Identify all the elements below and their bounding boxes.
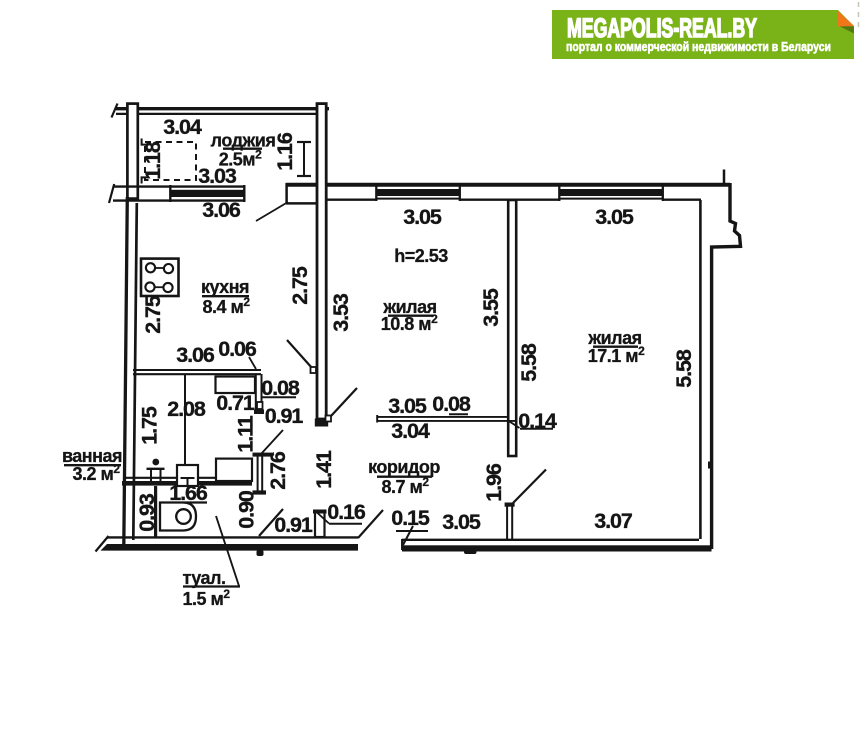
svg-text:3.07: 3.07	[594, 509, 633, 533]
svg-text:1.96: 1.96	[482, 463, 506, 502]
svg-text:5.58: 5.58	[672, 349, 696, 388]
svg-text:h=2.53: h=2.53	[394, 246, 448, 266]
svg-text:5.58: 5.58	[517, 343, 541, 382]
svg-text:1.5 м2: 1.5 м2	[182, 587, 230, 609]
svg-text:туал.: туал.	[183, 568, 226, 588]
svg-text:3.05: 3.05	[442, 510, 481, 534]
svg-text:3.06: 3.06	[202, 198, 241, 222]
svg-text:0.06: 0.06	[218, 337, 257, 361]
svg-text:3.04: 3.04	[163, 115, 202, 139]
svg-text:3.05: 3.05	[388, 394, 427, 418]
svg-text:0.08: 0.08	[432, 392, 471, 416]
svg-text:кухня: кухня	[201, 277, 249, 297]
svg-text:1.18: 1.18	[141, 141, 165, 180]
svg-text:3.04: 3.04	[391, 419, 430, 443]
svg-text:2.75: 2.75	[141, 295, 165, 334]
svg-text:8.4 м2: 8.4 м2	[202, 295, 250, 317]
svg-text:3.05: 3.05	[595, 205, 634, 229]
svg-text:3.03: 3.03	[198, 164, 237, 188]
svg-text:портал о коммерческой недвижим: портал о коммерческой недвижимости в Бел…	[566, 40, 831, 54]
svg-text:жилая: жилая	[587, 328, 641, 348]
svg-text:0.90: 0.90	[235, 490, 259, 529]
svg-text:лоджия: лоджия	[211, 131, 276, 151]
svg-text:3.06: 3.06	[176, 343, 215, 367]
svg-text:3.53: 3.53	[329, 293, 353, 332]
svg-text:8.7 м2: 8.7 м2	[381, 475, 429, 497]
svg-text:0.15: 0.15	[391, 506, 430, 530]
svg-text:0.91: 0.91	[274, 513, 313, 537]
svg-text:2.76: 2.76	[266, 451, 290, 490]
svg-text:1.41: 1.41	[312, 450, 336, 489]
svg-text:0.91: 0.91	[265, 404, 304, 428]
svg-text:3.05: 3.05	[403, 205, 442, 229]
svg-text:0.93: 0.93	[135, 493, 159, 532]
svg-text:0.16: 0.16	[327, 500, 366, 524]
svg-text:0.71: 0.71	[216, 391, 255, 415]
svg-text:1.75: 1.75	[138, 406, 162, 445]
svg-text:MEGAPOLIS-REAL.BY: MEGAPOLIS-REAL.BY	[567, 13, 757, 43]
svg-text:коридор: коридор	[368, 457, 440, 477]
svg-text:2.75: 2.75	[288, 266, 312, 305]
svg-text:10.8 м2: 10.8 м2	[381, 312, 438, 334]
svg-text:3.55: 3.55	[479, 288, 503, 327]
svg-text:2.08: 2.08	[167, 397, 206, 421]
svg-text:1.16: 1.16	[273, 132, 297, 171]
svg-text:1.11: 1.11	[234, 415, 258, 452]
svg-text:1.66: 1.66	[169, 481, 208, 505]
svg-text:3.2 м2: 3.2 м2	[72, 462, 120, 484]
svg-text:17.1 м2: 17.1 м2	[588, 344, 645, 366]
